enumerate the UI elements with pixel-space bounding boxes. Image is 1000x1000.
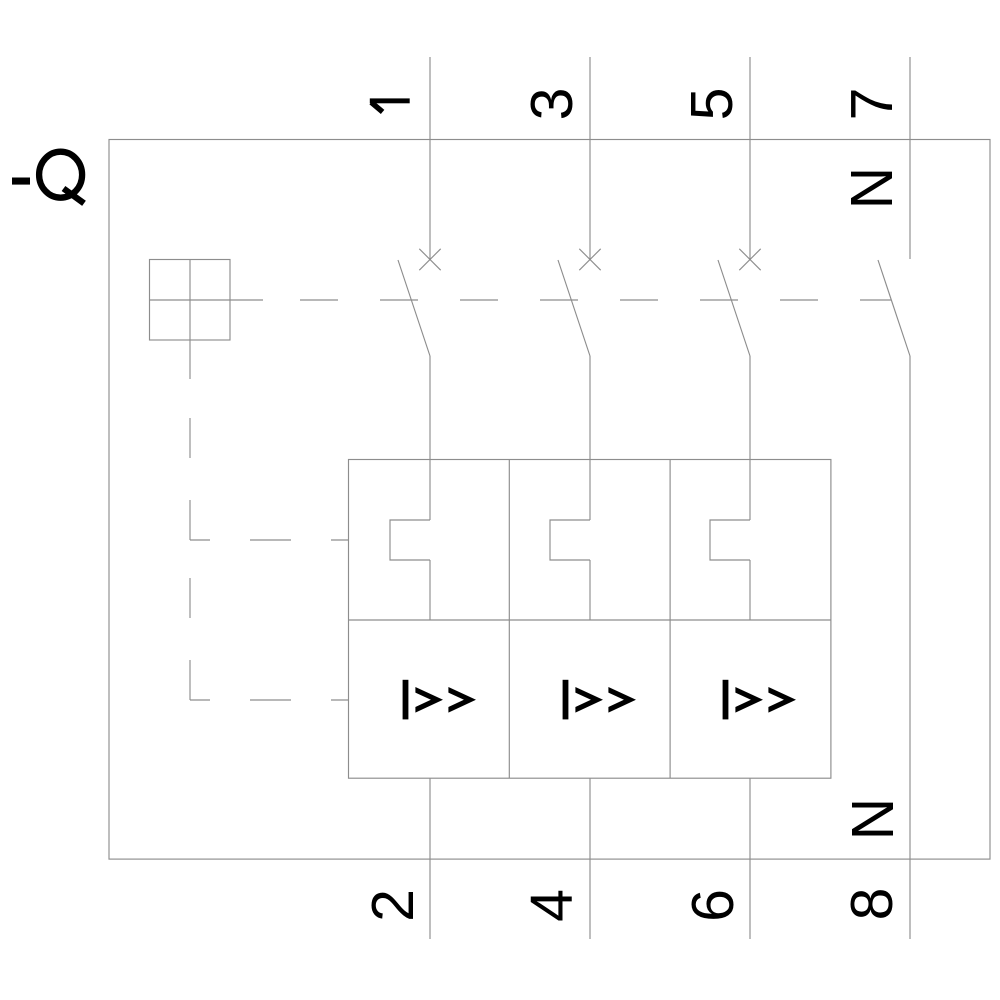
svg-text:5: 5 (679, 88, 745, 121)
svg-text:3: 3 (519, 88, 585, 121)
svg-text:8: 8 (839, 888, 905, 921)
svg-text:7: 7 (839, 88, 905, 121)
svg-text:N: N (839, 167, 905, 210)
svg-text:2: 2 (360, 889, 426, 922)
svg-text:6: 6 (680, 889, 746, 922)
svg-text:4: 4 (519, 889, 585, 922)
svg-text:N: N (840, 798, 906, 841)
